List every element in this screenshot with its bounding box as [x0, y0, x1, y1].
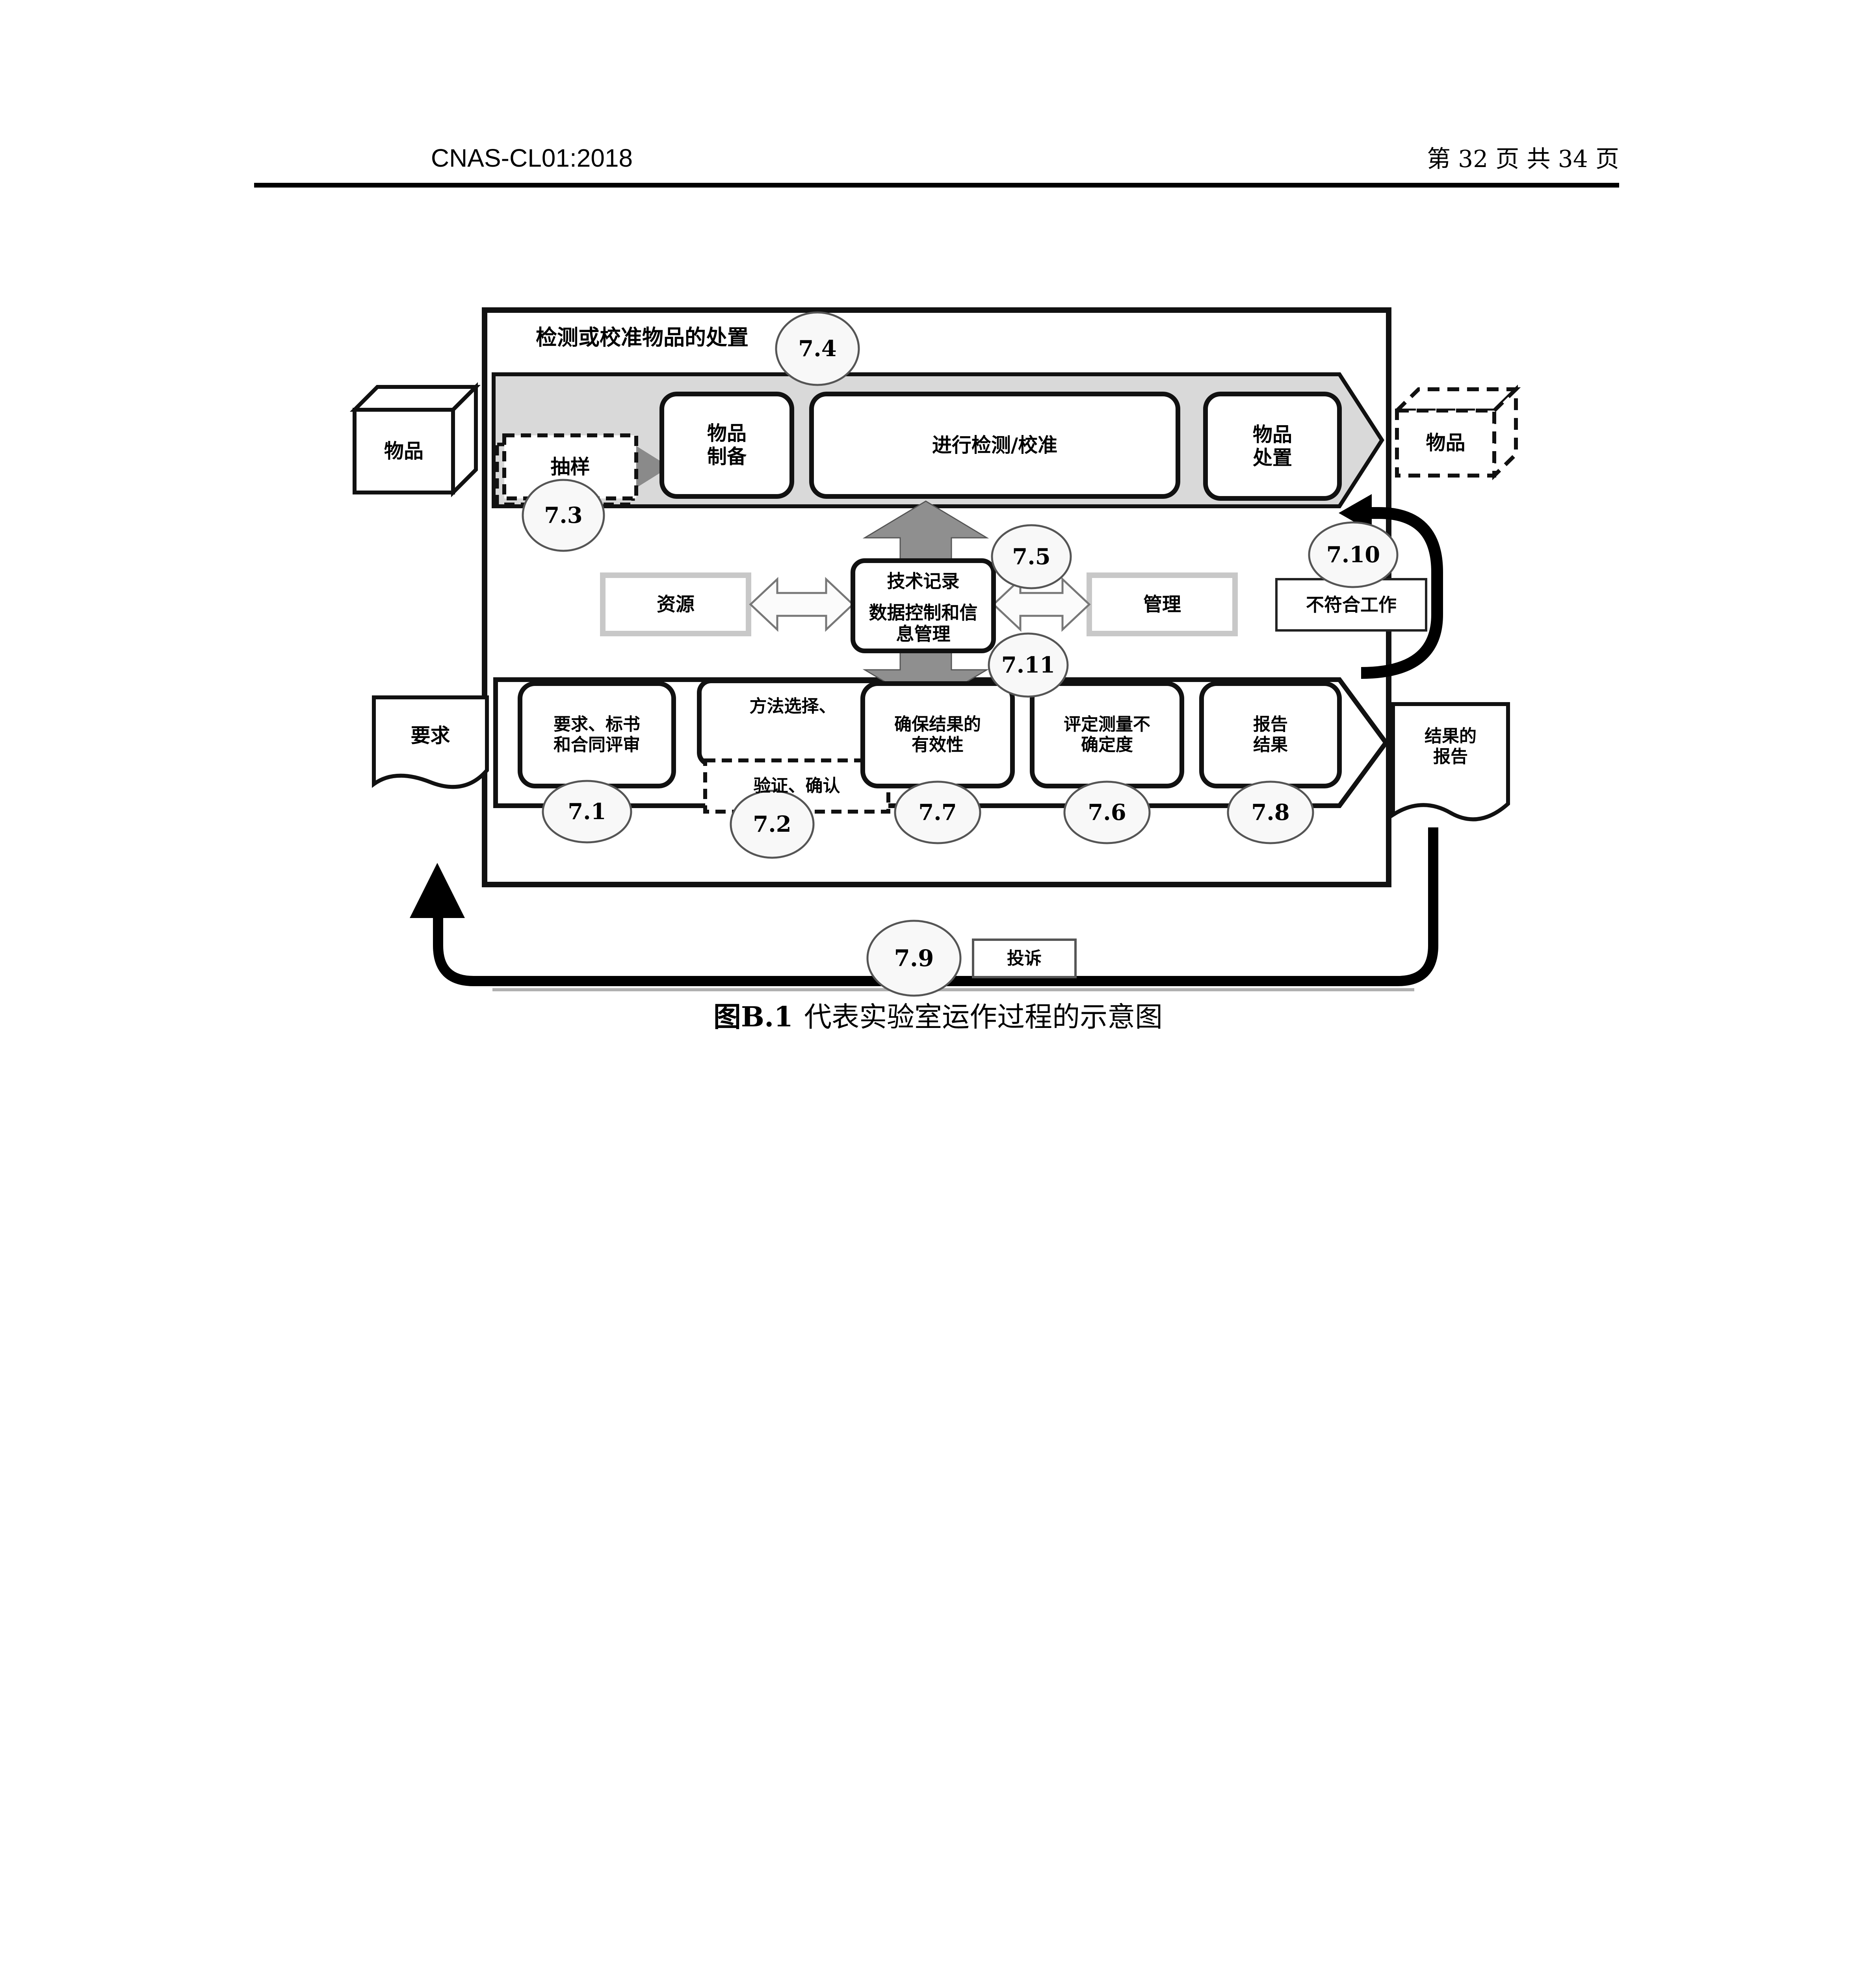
feedback-up-arrowhead	[410, 863, 465, 918]
ref-7-8: 7.8	[1226, 782, 1315, 843]
method-selection-label: 方法选择、	[699, 681, 886, 732]
ref-7-7: 7.7	[893, 782, 982, 843]
resources-label: 资源	[603, 575, 749, 634]
resources-double-arrow	[750, 579, 853, 630]
figure-caption-text: 代表实验室运作过程的示意图	[804, 995, 1163, 1035]
results-report-label: 结果的 报告	[1393, 704, 1508, 789]
nonconforming-work-label: 不符合工作	[1276, 579, 1426, 630]
complaints-label: 投诉	[973, 940, 1075, 977]
ref-7-6: 7.6	[1063, 782, 1151, 843]
ref-7-9: 7.9	[867, 922, 961, 994]
figure-caption-number: 图B.1	[713, 995, 793, 1035]
document-page: CNAS-CL01:2018 第 32 页 共 34 页	[0, 0, 1876, 1970]
items-out-label: 物品	[1397, 411, 1494, 476]
figure-caption: 图B.1 代表实验室运作过程的示意图	[0, 993, 1876, 1036]
data-control-label: 数据控制和信 息管理	[853, 596, 994, 651]
records-up-arrow	[865, 501, 987, 561]
item-preparation-label: 物品 制备	[662, 394, 792, 496]
testing-calibration-label: 进行检测/校准	[812, 394, 1178, 496]
uncertainty-label: 评定测量不 确定度	[1032, 684, 1182, 786]
validity-label: 确保结果的 有效性	[863, 684, 1012, 786]
items-in-label: 物品	[355, 410, 453, 492]
ref-7-3: 7.3	[520, 482, 607, 549]
ref-7-5: 7.5	[988, 525, 1075, 588]
item-disposal-label: 物品 处置	[1205, 394, 1339, 498]
ref-7-2: 7.2	[728, 792, 816, 857]
reporting-label: 报告 结果	[1202, 684, 1339, 786]
ref-7-1: 7.1	[543, 781, 631, 842]
ref-7-10: 7.10	[1309, 523, 1397, 586]
ref-7-11: 7.11	[985, 634, 1072, 697]
ref-7-4: 7.4	[774, 315, 861, 382]
contract-review-label: 要求、标书 和合同评审	[520, 684, 674, 786]
technical-records-label: 技术记录	[853, 565, 994, 597]
management-label: 管理	[1089, 575, 1235, 634]
request-label: 要求	[374, 697, 487, 774]
